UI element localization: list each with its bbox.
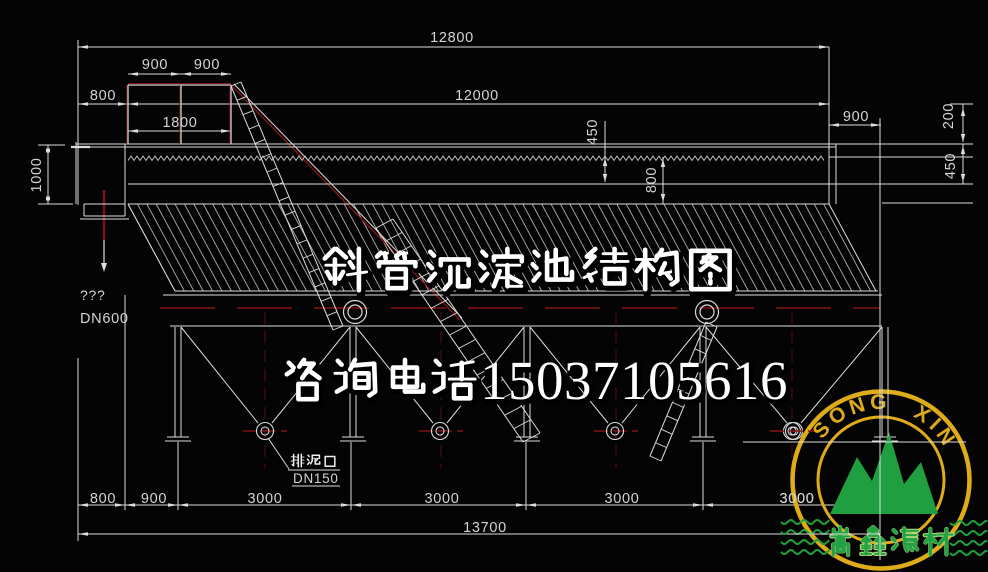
svg-text:800: 800 <box>90 88 116 104</box>
svg-text:900: 900 <box>141 491 167 507</box>
svg-text:450: 450 <box>943 153 959 179</box>
svg-text:900: 900 <box>843 109 869 125</box>
svg-text:900: 900 <box>194 57 220 73</box>
svg-text:DN600: DN600 <box>80 311 129 327</box>
svg-text:3000: 3000 <box>604 491 639 507</box>
svg-text:G: G <box>870 391 887 415</box>
svg-text:15037105616: 15037105616 <box>480 350 788 411</box>
svg-text:12800: 12800 <box>430 30 474 46</box>
svg-text:DN150: DN150 <box>293 471 339 486</box>
svg-text:3000: 3000 <box>247 491 282 507</box>
svg-text:12000: 12000 <box>455 88 499 104</box>
svg-text:13700: 13700 <box>463 520 507 536</box>
svg-text:200: 200 <box>941 103 957 129</box>
svg-text:450: 450 <box>585 119 601 145</box>
svg-text:1000: 1000 <box>29 157 45 192</box>
svg-text:1800: 1800 <box>162 115 197 131</box>
svg-text:800: 800 <box>90 491 116 507</box>
svg-text:800: 800 <box>644 167 660 193</box>
svg-text:3000: 3000 <box>424 491 459 507</box>
svg-text:???: ??? <box>80 287 105 303</box>
svg-text:3000: 3000 <box>779 491 814 507</box>
svg-text:900: 900 <box>142 57 168 73</box>
